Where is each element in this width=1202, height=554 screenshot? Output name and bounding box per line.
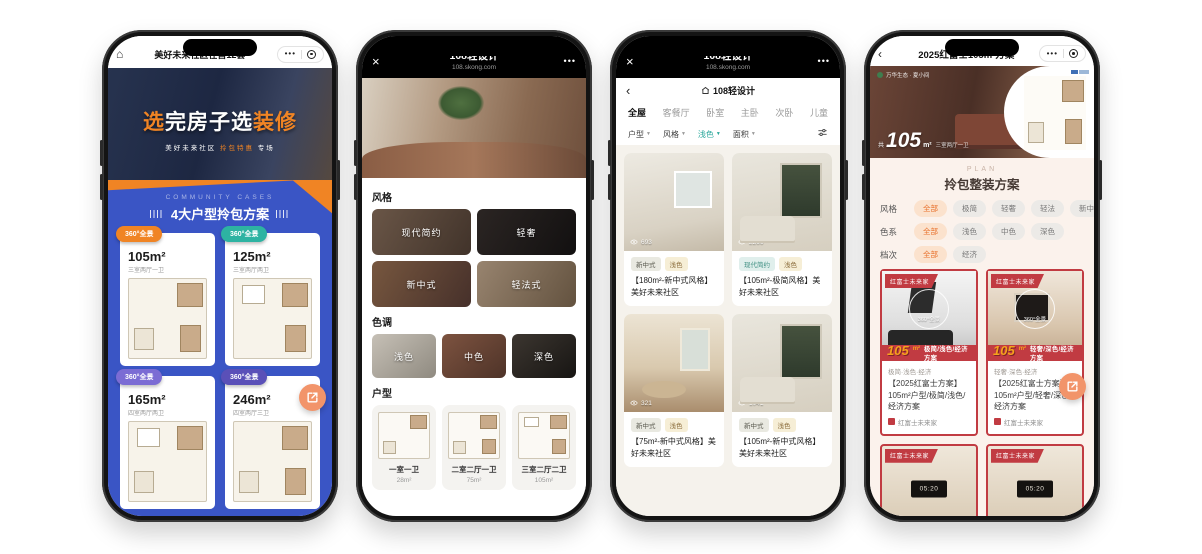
- filter-tone-label: 浅色: [698, 129, 714, 140]
- tone-tag: 浅色: [665, 418, 688, 432]
- style-tag: 现代简约: [739, 257, 775, 271]
- power-button: [845, 160, 848, 200]
- more-menu-icon[interactable]: •••: [810, 56, 830, 66]
- tag-row: 新中式 浅色: [631, 257, 717, 271]
- source-logo-icon: [994, 418, 1001, 425]
- p3-filter-bar: 户型▼ 风格▼ 浅色▼ 面积▼: [616, 123, 840, 145]
- share-button[interactable]: [1059, 373, 1086, 400]
- style-card-chinese[interactable]: 新中式: [372, 261, 471, 307]
- layout-card-1[interactable]: 一室一卫 28m²: [372, 405, 436, 490]
- notch: [437, 39, 511, 56]
- style-tag: 新中式: [631, 257, 661, 271]
- area-label: 125m²: [233, 249, 312, 264]
- filter-label: 档次: [880, 249, 908, 261]
- p1-hero-subtitle: 美好未来社区 拎包特惠 专场: [165, 142, 275, 152]
- brand-text: 万华生态 · 夏小间: [886, 71, 929, 79]
- style-tag: 新中式: [631, 418, 661, 432]
- case-photo: 693: [624, 153, 724, 251]
- close-icon[interactable]: ×: [372, 54, 392, 69]
- filter-area[interactable]: 面积▼: [733, 129, 756, 140]
- layout-area: 28m²: [378, 477, 430, 484]
- phone-1-screen: ⌂ 美好未来社区在售12套 ••• 选完房子选装修 美好未来社区 拎包特惠 专场…: [108, 36, 332, 516]
- p1-hero-title: 选完房子选装修: [143, 106, 297, 136]
- floorplan-card-165[interactable]: 360°全景 165m² 四室两厅两卫: [120, 376, 215, 509]
- phone-4-screen: ‹ 2025红富士105m²方案 ••• 万华生态 · 夏小间: [870, 36, 1094, 516]
- tab-kids-room[interactable]: 儿童: [810, 106, 828, 119]
- p3-subheader-title: 108轻设计: [644, 84, 812, 97]
- hero-area-block: 共 105 m² 三室两厅一卫: [878, 130, 969, 151]
- p2-content: 风格 现代简约 轻奢 新中式 轻法式 色调 浅色 中色 深色 户型: [362, 178, 586, 490]
- p1-hero-banner: 选完房子选装修 美好未来社区 拎包特惠 专场: [108, 68, 332, 180]
- tab-living-dining[interactable]: 客餐厅: [663, 106, 690, 119]
- caret-down-icon: ▼: [716, 131, 721, 137]
- plan-eyebrow: PLAN: [880, 166, 1084, 173]
- p3-domain: 108.skong.com: [646, 64, 810, 72]
- power-button: [337, 160, 340, 200]
- banner-area: 105: [993, 344, 1015, 357]
- panorama-badge[interactable]: 360°全景: [221, 226, 267, 242]
- source-logo-icon: [888, 418, 895, 425]
- banner-area-unit: m²: [913, 346, 920, 352]
- banner-area-unit: m²: [1019, 346, 1026, 352]
- eye-icon: [738, 399, 746, 407]
- floor-plan-image: [128, 421, 207, 502]
- panorama-badge[interactable]: 360°全景: [116, 369, 162, 385]
- case-photo: 2266: [732, 153, 832, 251]
- views-count: 693: [641, 239, 652, 246]
- mini-program-capsule[interactable]: •••: [277, 46, 324, 63]
- caret-down-icon: ▼: [646, 131, 651, 137]
- banner-area: 105: [887, 344, 909, 357]
- back-icon[interactable]: ‹: [878, 47, 894, 61]
- p4-plan-section: PLAN 拎包整装方案 风格 全部 极简 轻奢 轻法 新中 色系 全部 浅色 中…: [870, 158, 1094, 516]
- filter-pill-all[interactable]: 全部: [914, 200, 947, 217]
- case-card-body: 现代简约 浅色 【105m²-极简风格】美好未来社区: [732, 251, 832, 306]
- case-card-105-minimal[interactable]: 2266 现代简约 浅色 【105m²-极简风格】美好未来社区: [732, 153, 832, 306]
- filter-pill-french[interactable]: 轻法: [1031, 200, 1064, 217]
- filter-pill-dark[interactable]: 深色: [1031, 223, 1064, 240]
- hero-sub-highlight: 拎包特惠: [220, 145, 254, 152]
- source-name: 红富士未来家: [898, 417, 937, 427]
- ribbon-badge: 红富士未来家: [991, 449, 1044, 463]
- phone-1: ⌂ 美好未来社区在售12套 ••• 选完房子选装修 美好未来社区 拎包特惠 专场…: [102, 30, 338, 522]
- hero-title-highlight2: 装修: [253, 111, 297, 134]
- tab-master-bedroom[interactable]: 主卧: [741, 106, 759, 119]
- ribbon-badge: 红富士未来家: [885, 274, 938, 288]
- home-icon[interactable]: ⌂: [116, 48, 123, 60]
- filter-layout-label: 户型: [628, 129, 644, 140]
- mini-program-capsule[interactable]: •••: [1039, 45, 1086, 62]
- p2-hero-photo: [362, 78, 586, 178]
- case-card-75[interactable]: 321 新中式 浅色 【75m²-新中式风格】美好未来社区: [624, 314, 724, 467]
- rooms-label: 三室两厅一卫: [936, 141, 969, 149]
- floor-plan-image: [1024, 76, 1086, 150]
- style-card-luxury[interactable]: 轻奢: [477, 209, 576, 255]
- panorama-watermark: 360°全景: [1015, 289, 1055, 329]
- floor-plan-thumb: [448, 412, 500, 459]
- volume-down-button: [862, 174, 865, 200]
- layout-card-2[interactable]: 二室二厅一卫 75m²: [442, 405, 506, 490]
- phone-2: × 108轻设计 108.skong.com ••• 风格 现代简约 轻奢 新中…: [356, 30, 592, 522]
- views-counter: 2266: [738, 238, 763, 246]
- filter-pill-light[interactable]: 浅色: [953, 223, 986, 240]
- filter-pill-minimal[interactable]: 极简: [953, 200, 986, 217]
- share-icon: [306, 391, 319, 404]
- style-tag: 新中式: [739, 418, 769, 432]
- layout-card-3[interactable]: 三室二厅二卫 105m²: [512, 405, 576, 490]
- filter-label: 风格: [880, 203, 908, 215]
- views-count: 321: [641, 400, 652, 407]
- views-counter: 693: [630, 238, 652, 246]
- capsule-divider: [301, 50, 302, 59]
- tone-grid: 浅色 中色 深色: [372, 334, 576, 378]
- case-card-body: 新中式 浅色 【105m²-新中式风格】美好未来社区: [732, 412, 832, 467]
- close-icon[interactable]: ×: [626, 54, 646, 69]
- filter-label: 色系: [880, 226, 908, 238]
- p1-section-title-text: 4大户型拎包方案: [171, 204, 269, 223]
- tone-card-dark[interactable]: 深色: [512, 334, 576, 378]
- filter-tone-active[interactable]: 浅色▼: [698, 129, 721, 140]
- area-number: 105: [886, 130, 921, 151]
- p3-case-list: 693 新中式 浅色 【180m²-新中式风格】美好未来社区: [616, 145, 840, 516]
- layout-area: 105m²: [518, 477, 570, 484]
- tone-tag: 浅色: [779, 257, 802, 271]
- panorama-badge[interactable]: 360°全景: [116, 226, 162, 242]
- decor-bars-right: [276, 210, 290, 218]
- notch: [691, 39, 765, 56]
- style-card-modern[interactable]: 现代简约: [372, 209, 471, 255]
- brand-logo-dot: [877, 72, 883, 78]
- plan-source: 红富士未来家: [888, 417, 970, 427]
- layout-name: 三室二厅二卫: [518, 464, 570, 475]
- share-button[interactable]: [299, 384, 326, 411]
- plan-title: 拎包整装方案: [880, 174, 1084, 193]
- filter-area-label: 面积: [733, 129, 749, 140]
- layout-grid: 一室一卫 28m² 二室二厅一卫 75m² 三室二厅二卫 105m²: [372, 405, 576, 490]
- tone-tag: 浅色: [665, 257, 688, 271]
- screenshot-canvas: ⌂ 美好未来社区在售12套 ••• 选完房子选装修 美好未来社区 拎包特惠 专场…: [0, 0, 1202, 554]
- filter-pill-economy[interactable]: 经济: [953, 246, 986, 263]
- p1-section-title: 4大户型拎包方案: [108, 204, 332, 223]
- views-counter: 1041: [738, 399, 763, 407]
- area-label: 165m²: [128, 392, 207, 407]
- back-icon[interactable]: ‹: [626, 84, 644, 97]
- layout-section-heading: 户型: [372, 385, 576, 400]
- filter-pill-all[interactable]: 全部: [914, 246, 947, 263]
- layout-name: 二室二厅一卫: [448, 464, 500, 475]
- filter-pill-chinese[interactable]: 新中: [1070, 200, 1094, 217]
- tag-row: 新中式 浅色: [739, 418, 825, 432]
- p1-cases-section: COMMUNITY CASES 4大户型拎包方案 360°全景 105m² 三室…: [108, 180, 332, 516]
- power-button: [1099, 160, 1102, 200]
- store-icon: [701, 86, 710, 95]
- p3-subheader: ‹ 108轻设计: [616, 78, 840, 102]
- volume-up-button: [100, 140, 103, 166]
- notch: [183, 39, 257, 56]
- capsule-close-icon[interactable]: [307, 50, 316, 59]
- volume-up-button: [608, 140, 611, 166]
- phone-2-screen: × 108轻设计 108.skong.com ••• 风格 现代简约 轻奢 新中…: [362, 36, 586, 516]
- p3-subheader-text: 108轻设计: [713, 84, 755, 97]
- sliders-icon[interactable]: [817, 125, 828, 143]
- plan-card-info: 极简·浅色·经济 【2025红富士方案】105m²户型/极简/浅色/经济方案 红…: [882, 361, 976, 434]
- floor-plan-thumb: [378, 412, 430, 459]
- hero-title-mid: 完房子选: [165, 111, 253, 134]
- panorama-badge[interactable]: 360°全景: [221, 369, 267, 385]
- p4-hero-photo: 万华生态 · 夏小间 共 105 m² 三室两厅一卫: [870, 66, 1094, 158]
- area-label: 105m²: [128, 249, 207, 264]
- volume-down-button: [608, 174, 611, 200]
- tone-card-light[interactable]: 浅色: [372, 334, 436, 378]
- style-section-heading: 风格: [372, 189, 576, 204]
- p1-floorplan-grid: 360°全景 105m² 三室两厅一卫 360°全景 125m² 三室两厅两卫 …: [108, 223, 332, 516]
- notch: [945, 39, 1019, 56]
- layout-name: 一室一卫: [378, 464, 430, 475]
- case-title: 【180m²-新中式风格】美好未来社区: [631, 275, 717, 298]
- floor-plan-image: [233, 278, 312, 359]
- area-prefix: 共: [878, 140, 884, 149]
- p1-section-eyebrow: COMMUNITY CASES: [108, 194, 332, 201]
- filter-pill-all[interactable]: 全部: [914, 223, 947, 240]
- filter-style-label: 风格: [663, 129, 679, 140]
- capsule-close-icon[interactable]: [1069, 49, 1078, 58]
- case-photo: 1041: [732, 314, 832, 412]
- case-card-body: 新中式 浅色 【75m²-新中式风格】美好未来社区: [624, 412, 724, 467]
- tone-card-medium[interactable]: 中色: [442, 334, 506, 378]
- hero-floorplan-panel: [1004, 66, 1094, 158]
- case-card-body: 新中式 浅色 【180m²-新中式风格】美好未来社区: [624, 251, 724, 306]
- rooms-label: 四室两厅两卫: [128, 408, 207, 417]
- video-card-1[interactable]: 红富士未来家 05:20: [880, 444, 978, 516]
- p4-bottom-cards: 红富士未来家 05:20 红富士未来家 05:20: [880, 444, 1084, 516]
- views-count: 1041: [749, 400, 763, 407]
- p2-domain: 108.skong.com: [392, 64, 556, 72]
- filter-style[interactable]: 风格▼: [663, 129, 686, 140]
- phone-3: × 108轻设计 108.skong.com ••• ‹ 108轻设计 全屋 客…: [610, 30, 846, 522]
- tv-clock-display: 05:20: [911, 481, 947, 498]
- rooms-label: 三室两厅两卫: [233, 265, 312, 274]
- partner-logo: [1071, 70, 1090, 74]
- plan-meta: 极简·浅色·经济: [888, 366, 970, 376]
- share-icon: [1066, 380, 1079, 393]
- plan-card-minimal[interactable]: 红富士未来家 360°全景 105 m² 极简/浅色/经济方案 极简·浅色·经济: [880, 269, 978, 436]
- capsule-divider: [1063, 49, 1064, 58]
- filter-row-tone: 色系 全部 浅色 中色 深色: [880, 223, 1084, 240]
- plan-source: 红富士未来家: [994, 417, 1076, 427]
- filter-pill-luxury[interactable]: 轻奢: [992, 200, 1025, 217]
- ribbon-badge: 红富士未来家: [991, 274, 1044, 288]
- hero-sub-pre: 美好未来社区: [165, 145, 220, 152]
- plan-card-luxury[interactable]: 红富士未来家 360°全景 105 m² 轻奢/深色/经济方案 轻奢·深色·经济: [986, 269, 1084, 436]
- floorplan-card-105[interactable]: 360°全景 105m² 三室两厅一卫: [120, 233, 215, 366]
- tv-clock-display: 05:20: [1017, 481, 1053, 498]
- case-title: 【105m²-新中式风格】美好未来社区: [739, 436, 825, 459]
- power-button: [591, 160, 594, 200]
- more-menu-icon[interactable]: •••: [556, 56, 576, 66]
- floor-plan-thumb: [518, 412, 570, 459]
- views-counter: 321: [630, 399, 652, 407]
- area-unit: m²: [923, 142, 932, 149]
- panorama-watermark: 360°全景: [909, 289, 949, 329]
- filter-row-style: 风格 全部 极简 轻奢 轻法 新中: [880, 200, 1084, 217]
- decor-bars-left: [150, 210, 164, 218]
- case-photo: 321: [624, 314, 724, 412]
- plan-title-text: 【2025红富士方案】105m²户型/极简/浅色/经济方案: [888, 378, 970, 413]
- style-grid: 现代简约 轻奢 新中式 轻法式: [372, 209, 576, 307]
- price-banner: 105 m² 轻奢/深色/经济方案: [988, 345, 1082, 361]
- price-banner: 105 m² 极简/浅色/经济方案: [882, 345, 976, 361]
- banner-text: 轻奢/深色/经济方案: [1030, 344, 1077, 361]
- eye-icon: [630, 399, 638, 407]
- volume-up-button: [862, 140, 865, 166]
- caret-down-icon: ▼: [751, 131, 756, 137]
- layout-area: 75m²: [448, 477, 500, 484]
- tab-bedroom[interactable]: 卧室: [706, 106, 724, 119]
- tone-section-heading: 色调: [372, 314, 576, 329]
- p4-brand-lockup: 万华生态 · 夏小间: [877, 71, 929, 79]
- banner-text: 极简/浅色/经济方案: [924, 344, 971, 361]
- tab-whole-house[interactable]: 全屋: [628, 106, 646, 119]
- p3-room-tabs: 全屋 客餐厅 卧室 主卧 次卧 儿童: [616, 102, 840, 123]
- caret-down-icon: ▼: [681, 131, 686, 137]
- filter-row-grade: 档次 全部 经济: [880, 246, 1084, 263]
- case-card-105-chinese[interactable]: 1041 新中式 浅色 【105m²-新中式风格】美好未来社区: [732, 314, 832, 467]
- phone-3-screen: × 108轻设计 108.skong.com ••• ‹ 108轻设计 全屋 客…: [616, 36, 840, 516]
- video-card-2[interactable]: 红富士未来家 05:20: [986, 444, 1084, 516]
- p4-plan-cards: 红富士未来家 360°全景 105 m² 极简/浅色/经济方案 极简·浅色·经济: [880, 269, 1084, 436]
- floor-plan-image: [128, 278, 207, 359]
- floorplan-card-125[interactable]: 360°全景 125m² 三室两厅两卫: [225, 233, 320, 366]
- rooms-label: 三室两厅一卫: [128, 265, 207, 274]
- tab-second-bedroom[interactable]: 次卧: [775, 106, 793, 119]
- filter-layout[interactable]: 户型▼: [628, 129, 651, 140]
- eye-icon: [738, 238, 746, 246]
- ribbon-badge: 红富士未来家: [885, 449, 938, 463]
- filter-pill-medium[interactable]: 中色: [992, 223, 1025, 240]
- volume-down-button: [354, 174, 357, 200]
- tone-tag: 浅色: [773, 418, 796, 432]
- tag-row: 现代简约 浅色: [739, 257, 825, 271]
- views-count: 2266: [749, 239, 763, 246]
- hero-sub-suf: 专场: [254, 145, 275, 152]
- eye-icon: [630, 238, 638, 246]
- source-name: 红富士未来家: [1004, 417, 1043, 427]
- case-card-180[interactable]: 693 新中式 浅色 【180m²-新中式风格】美好未来社区: [624, 153, 724, 306]
- hero-title-highlight: 选: [143, 111, 165, 134]
- phone-4: ‹ 2025红富士105m²方案 ••• 万华生态 · 夏小间: [864, 30, 1100, 522]
- more-menu-icon[interactable]: •••: [1047, 50, 1058, 58]
- case-title: 【105m²-极简风格】美好未来社区: [739, 275, 825, 298]
- case-title: 【75m²-新中式风格】美好未来社区: [631, 436, 717, 459]
- floor-plan-image: [233, 421, 312, 502]
- volume-up-button: [354, 140, 357, 166]
- style-card-french[interactable]: 轻法式: [477, 261, 576, 307]
- tag-row: 新中式 浅色: [631, 418, 717, 432]
- rooms-label: 四室两厅三卫: [233, 408, 312, 417]
- volume-down-button: [100, 174, 103, 200]
- more-menu-icon[interactable]: •••: [285, 50, 296, 58]
